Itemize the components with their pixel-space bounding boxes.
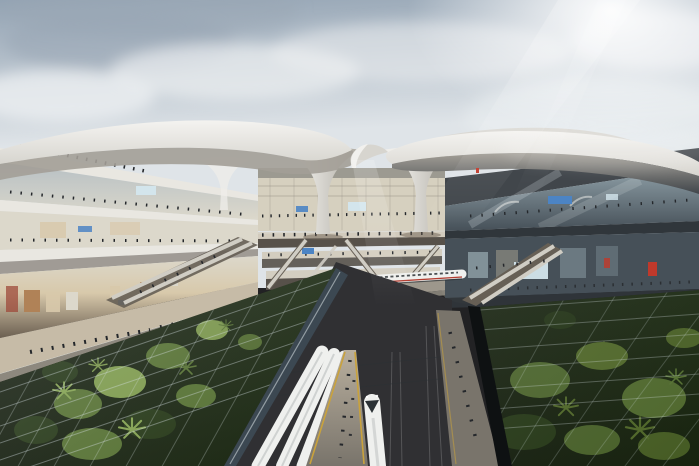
- column-base-shadow: [401, 232, 441, 238]
- lit-interior: [110, 222, 140, 235]
- column-base-shadow: [303, 234, 343, 240]
- headlight: [366, 396, 368, 398]
- headlight: [376, 395, 378, 397]
- shop-display: [46, 292, 60, 312]
- terrace-screen: [606, 194, 618, 200]
- info-screen: [296, 206, 308, 212]
- station-rendering-canvas: [0, 0, 699, 466]
- shop-display: [468, 252, 488, 278]
- terrace-screen: [548, 196, 572, 204]
- gallery-screen: [136, 186, 156, 195]
- red-sign: [648, 262, 657, 276]
- red-sign: [604, 258, 610, 268]
- shop-display: [560, 248, 586, 278]
- station-rendering: Architectural rendering of a futuristic …: [0, 0, 699, 466]
- shop-display: [6, 286, 18, 312]
- shop-display: [66, 292, 78, 310]
- lit-interior: [40, 222, 66, 238]
- gallery-screen: [78, 226, 92, 232]
- glass-sheen: [480, 290, 699, 466]
- info-screen: [302, 248, 314, 254]
- shop-display: [24, 290, 40, 312]
